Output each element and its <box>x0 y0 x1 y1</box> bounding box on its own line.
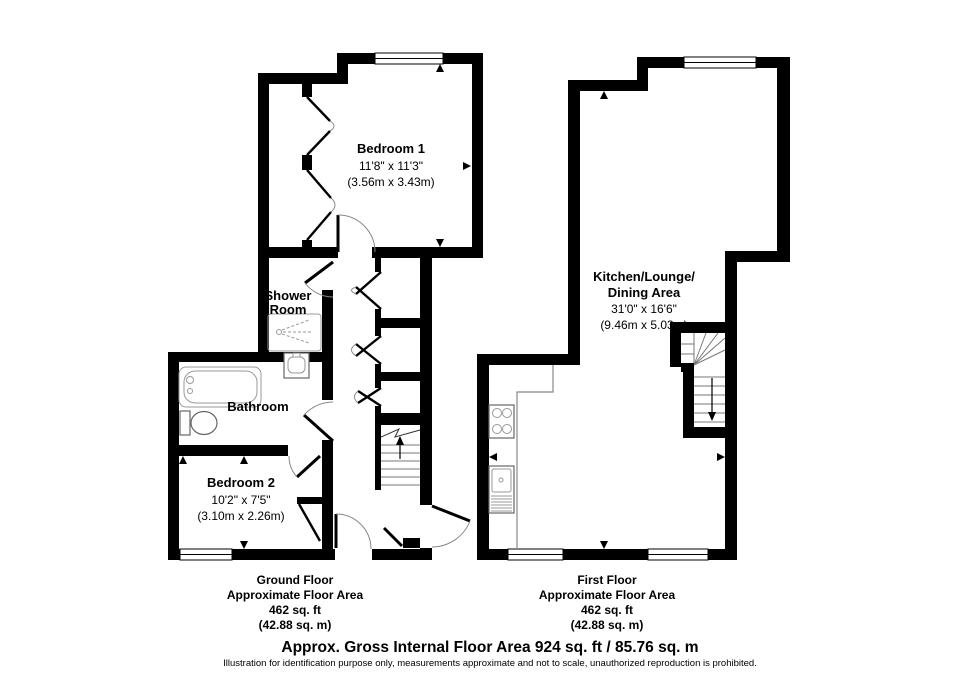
bedroom1-size-metric: (3.56m x 3.43m) <box>347 175 434 189</box>
window-bedroom2 <box>180 549 232 560</box>
first-floor-caption-line3: 462 sq. ft <box>581 603 633 617</box>
ground-floor-caption-title: Ground Floor <box>257 573 334 587</box>
hob <box>489 405 514 438</box>
window-first-top <box>684 57 756 68</box>
ground-floor-labels: Bedroom 1 11'8" x 11'3" (3.56m x 3.43m) … <box>197 141 434 523</box>
kitchen-lounge-name-line2: Dining Area <box>608 285 681 300</box>
kitchen-lounge-name-line1: Kitchen/Lounge/ <box>593 269 695 284</box>
first-floor-caption-line2: Approximate Floor Area <box>539 588 676 602</box>
first-floor-caption-title: First Floor <box>577 573 637 587</box>
first-floor-plan: Kitchen/Lounge/ Dining Area 31'0" x 16'6… <box>477 57 790 632</box>
ground-floor-caption-line4: (42.88 sq. m) <box>259 618 332 632</box>
kitchen-lounge-size-metric: (9.46m x 5.03m) <box>600 318 687 332</box>
floor-plan-svg: Bedroom 1 11'8" x 11'3" (3.56m x 3.43m) … <box>0 0 980 692</box>
window-first-bottom-left <box>508 549 563 560</box>
washbasin <box>284 353 309 378</box>
first-floor-caption: First Floor Approximate Floor Area 462 s… <box>539 573 676 632</box>
kitchen-lounge-size-imperial: 31'0" x 16'6" <box>611 302 677 316</box>
shower-tray <box>268 314 321 351</box>
bathroom-name: Bathroom <box>227 399 288 414</box>
shower-room-name-line1: Shower <box>265 288 312 303</box>
bedroom2-name: Bedroom 2 <box>207 475 275 490</box>
kitchen-sink <box>489 466 514 513</box>
shower-room-name-line2: Room <box>270 302 307 317</box>
total-floor-area-text: Approx. Gross Internal Floor Area 924 sq… <box>281 639 698 656</box>
ground-floor-caption-line2: Approximate Floor Area <box>227 588 364 602</box>
bedroom2-size-metric: (3.10m x 2.26m) <box>197 509 284 523</box>
first-floor-labels: Kitchen/Lounge/ Dining Area 31'0" x 16'6… <box>593 269 695 332</box>
ground-floor-plan: Bedroom 1 11'8" x 11'3" (3.56m x 3.43m) … <box>168 53 483 632</box>
disclaimer-text: Illustration for identification purpose … <box>223 658 757 669</box>
window-first-bottom-right <box>648 549 708 560</box>
toilet <box>180 411 217 435</box>
window-bedroom1 <box>375 53 443 64</box>
bedroom2-size-imperial: 10'2" x 7'5" <box>211 493 270 507</box>
footer: Approx. Gross Internal Floor Area 924 sq… <box>223 639 757 669</box>
staircase-ground <box>381 429 420 485</box>
bedroom1-name: Bedroom 1 <box>357 141 425 156</box>
ground-floor-caption: Ground Floor Approximate Floor Area 462 … <box>227 573 364 632</box>
bedroom1-size-imperial: 11'8" x 11'3" <box>359 159 423 173</box>
first-floor-caption-line4: (42.88 sq. m) <box>571 618 644 632</box>
kitchen-counter <box>517 365 553 549</box>
ground-floor-caption-line3: 462 sq. ft <box>269 603 321 617</box>
